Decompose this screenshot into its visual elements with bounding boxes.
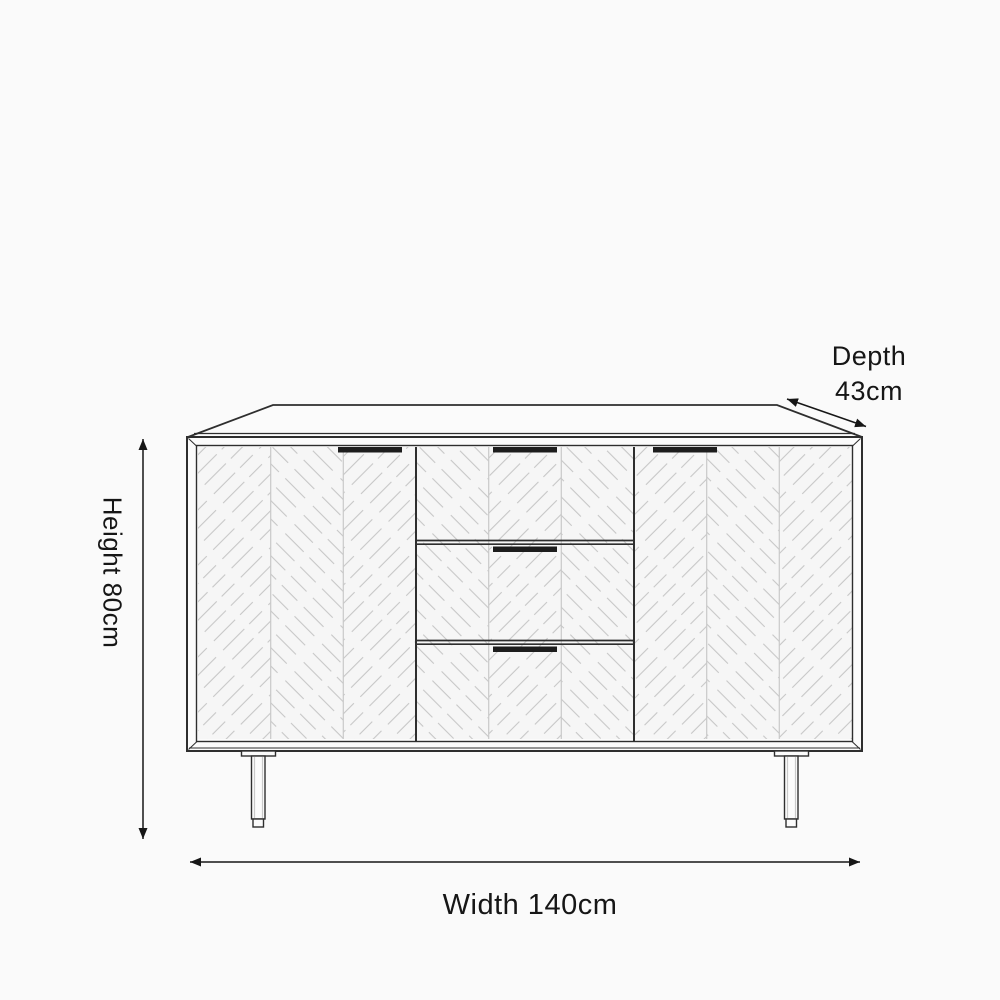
herringbone-strip xyxy=(343,447,416,739)
herringbone-strip xyxy=(707,447,780,739)
drawer-1 xyxy=(493,447,557,453)
cabinet-body xyxy=(187,437,862,751)
left-door-handle xyxy=(338,447,402,453)
herringbone-panels xyxy=(198,447,852,739)
sideboard-line-drawing xyxy=(0,0,1000,1000)
herringbone-strip xyxy=(198,447,271,739)
depth-label: Depth 43cm xyxy=(804,339,934,409)
drawer-2-handle xyxy=(493,547,557,553)
herringbone-strip xyxy=(271,447,344,739)
herringbone-strip xyxy=(489,447,562,739)
dimension-diagram-page: Depth 43cm Height 80cm Width 140cm xyxy=(0,0,1000,1000)
depth-label-value: 43cm xyxy=(804,374,934,409)
depth-label-word: Depth xyxy=(804,339,934,374)
height-label: Height 80cm xyxy=(99,423,126,723)
cabinet-top xyxy=(188,405,862,437)
front-right-leg xyxy=(775,751,809,827)
right-door-handle xyxy=(653,447,717,453)
herringbone-strip xyxy=(634,447,707,739)
width-label: Width 140cm xyxy=(380,889,680,921)
herringbone-strip xyxy=(561,447,634,739)
front-left-leg xyxy=(242,751,276,827)
herringbone-strip xyxy=(779,447,852,739)
drawer-3-handle xyxy=(493,647,557,653)
drawer-1-handle xyxy=(493,447,557,453)
legs xyxy=(242,751,809,827)
herringbone-strip xyxy=(416,447,489,739)
top-surface xyxy=(188,405,862,437)
